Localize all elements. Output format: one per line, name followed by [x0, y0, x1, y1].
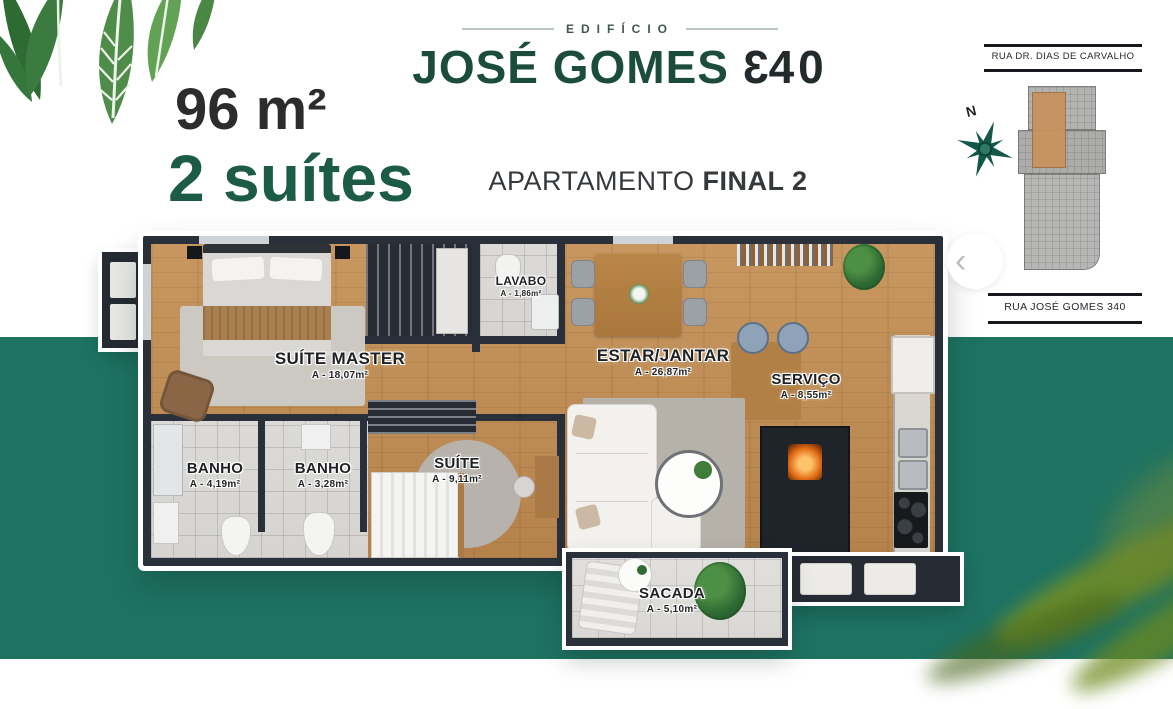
carousel-prev-button[interactable]: ‹: [947, 233, 1003, 289]
room-area-banho-2: A - 3,28m²: [298, 479, 348, 490]
bar-stool: [737, 322, 769, 354]
fireplace-tv-unit: [760, 426, 850, 558]
sideboard: [737, 244, 833, 266]
washbasin: [153, 502, 179, 544]
cooktop: [894, 492, 928, 548]
wall-segment: [365, 336, 565, 344]
wardrobe-shelf: [436, 248, 468, 334]
shower: [153, 424, 183, 496]
dining-table: [595, 254, 681, 336]
room-area-banho-1: A - 4,19m²: [190, 479, 240, 490]
room-label-banho-2: BANHO: [295, 460, 352, 477]
fireplace-flame: [788, 444, 822, 480]
blanket: [203, 306, 331, 340]
building-name: JOSÉ GOMES: [412, 41, 729, 93]
laundry-tank: [800, 563, 852, 595]
window: [199, 236, 269, 244]
service-extension: [788, 556, 960, 602]
street-label-bottom: RUA JOSÉ GOMES 340: [988, 301, 1142, 313]
street-rule: [988, 321, 1142, 324]
refrigerator: [891, 336, 935, 394]
room-label-estar-jantar: ESTAR/JANTAR: [597, 346, 729, 366]
wall-segment: [258, 420, 265, 532]
dining-chair: [683, 298, 707, 326]
headboard: [203, 244, 331, 253]
room-label-servico: SERVIÇO: [771, 371, 840, 388]
balcony-table-plant: [637, 565, 647, 575]
building-eyebrow-row: EDIFÍCIO: [462, 22, 778, 36]
sofa-cushion-line: [576, 501, 648, 502]
nightstand: [335, 246, 350, 259]
room-area-estar-jantar: A - 26,87m²: [635, 367, 691, 378]
building-eyebrow-label: EDIFÍCIO: [566, 22, 674, 36]
dining-chair: [571, 298, 595, 326]
washbasin: [531, 294, 559, 330]
room-area-suite: A - 9,11m²: [432, 474, 482, 485]
room-label-lavabo: LAVABO: [496, 274, 547, 288]
room-label-sacada: SACADA: [639, 585, 705, 602]
throw-pillow: [571, 414, 597, 440]
building-number: 340: [739, 41, 828, 93]
sink-bowl: [898, 428, 928, 458]
room-area-suite-master: A - 18,07m²: [312, 370, 368, 381]
wall-segment: [360, 420, 367, 532]
window: [613, 236, 673, 244]
room-label-suite-master: SUÍTE MASTER: [275, 349, 405, 369]
building-overview-minimap: [1018, 86, 1106, 270]
coffee-table: [655, 450, 723, 518]
room-label-banho-1: BANHO: [187, 460, 244, 477]
eyebrow-left-rule: [462, 28, 554, 30]
bar-stool: [777, 322, 809, 354]
building-title: JOSÉ GOMES340: [392, 40, 848, 94]
apartment-area-text: 96 m²: [175, 76, 327, 143]
chevron-left-icon: ‹: [955, 244, 966, 278]
dining-chair: [683, 260, 707, 288]
floorplan-exterior-box: [102, 252, 144, 348]
kitchen-sink: [896, 428, 926, 490]
laundry-tank: [864, 563, 916, 595]
apartment-suites-text: 2 suítes: [168, 140, 414, 216]
washbasin: [301, 424, 331, 450]
planter-panel: [110, 304, 136, 340]
master-wardrobe: [366, 244, 472, 336]
eyebrow-right-rule: [686, 28, 778, 30]
street-rule: [984, 69, 1142, 72]
coffee-table-plant: [694, 461, 712, 479]
window: [143, 264, 151, 340]
compass-icon: [948, 112, 1021, 185]
corner-plant: [843, 244, 885, 290]
suite-chair: [513, 476, 535, 498]
planter-panel: [110, 262, 136, 298]
room-area-servico: A - 8,55m²: [781, 390, 831, 401]
sofa-cushion-line: [576, 453, 648, 454]
room-area-sacada: A - 5,10m²: [647, 604, 697, 615]
table-flowers: [629, 284, 649, 304]
suite-desk: [535, 456, 559, 518]
street-rule: [988, 293, 1142, 296]
street-label-top: RUA DR. DIAS DE CARVALHO: [984, 51, 1142, 62]
room-area-lavabo: A - 1,86m²: [501, 289, 542, 298]
pillow: [210, 256, 265, 283]
sink-bowl: [898, 460, 928, 490]
minimap-block: [1024, 174, 1100, 270]
minimap-highlighted-unit: [1032, 92, 1066, 168]
bed-frame: [458, 473, 464, 557]
pillow: [268, 256, 323, 283]
dining-chair: [571, 260, 595, 288]
apartment-subtitle: APARTAMENTOFINAL 2: [428, 166, 868, 197]
master-bed: [203, 244, 331, 356]
street-rule: [984, 44, 1142, 47]
nightstand: [187, 246, 202, 259]
suite-wardrobe: [368, 400, 476, 434]
room-label-suite: SUÍTE: [434, 455, 480, 472]
